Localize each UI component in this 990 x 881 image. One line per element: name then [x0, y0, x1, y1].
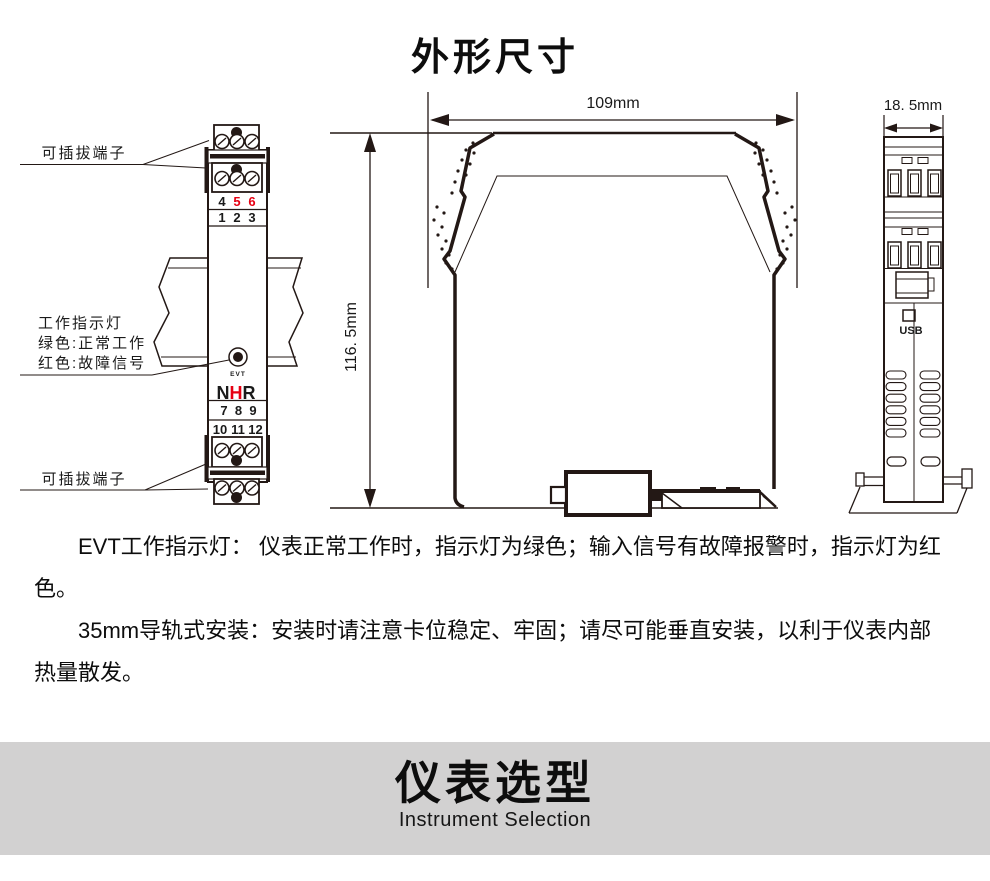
terminal-number: 9: [249, 403, 256, 418]
front-view-diagram: 4 5 6 1 2 3 EVT NHR 7 8 9: [20, 125, 303, 504]
width-dimension: 109mm: [428, 92, 797, 288]
din-clip: [551, 472, 776, 515]
pluggable-terminal-label-top: 可插拔端子: [41, 145, 126, 162]
width-dimension-label: 109mm: [586, 95, 639, 112]
housing-outline: [444, 133, 785, 507]
height-dimension-label: 116. 5mm: [343, 302, 360, 372]
terminal-latch-dot: [231, 492, 242, 503]
terminal-number: 12: [248, 422, 262, 437]
side-view-diagram: 109mm 116. 5mm: [330, 92, 797, 515]
indicator-led: [233, 352, 243, 362]
usb-label: USB: [899, 325, 922, 337]
pluggable-terminal-label-bottom: 可插拔端子: [41, 471, 126, 488]
note-evt-indicator: EVT工作指示灯： 仪表正常工作时，指示灯为绿色；输入信号有故障报警时，指示灯为…: [34, 526, 950, 610]
manual-page: 外形尺寸: [0, 0, 990, 881]
terminal-number: 3: [248, 210, 255, 225]
height-dimension: 116. 5mm: [330, 133, 778, 508]
indicator-label-line1: 工作指示灯: [38, 315, 123, 332]
top-terminal-assembly: [205, 125, 271, 193]
status-indicator: EVT: [229, 348, 247, 378]
banner-subtitle: Instrument Selection: [0, 809, 990, 832]
dot-texture: [432, 141, 796, 270]
indicator-label-line2: 绿色:正常工作: [38, 335, 146, 352]
dimension-drawing: 4 5 6 1 2 3 EVT NHR 7 8 9: [0, 0, 990, 530]
profile-view-diagram: 18. 5mm: [849, 97, 972, 513]
depth-dimension: 18. 5mm: [884, 97, 943, 136]
terminal-number: 10: [213, 422, 227, 437]
section-banner: 仪表选型 Instrument Selection: [0, 742, 990, 855]
notes-section: EVT工作指示灯： 仪表正常工作时，指示灯为绿色；输入信号有故障报警时，指示灯为…: [34, 526, 950, 694]
terminal-number: 11: [231, 422, 245, 437]
indicator-label-line3: 红色:故障信号: [38, 354, 146, 372]
banner-title: 仪表选型: [0, 742, 990, 809]
callout-pluggable-bottom: 可插拔端子: [20, 464, 208, 490]
terminal-latch-dot: [231, 455, 242, 466]
note-rail-mounting: 35mm导轨式安装：安装时请注意卡位稳定、牢固；请尽可能垂直安装，以利于仪表内部…: [34, 610, 950, 694]
callout-pluggable-top: 可插拔端子: [20, 141, 209, 169]
terminal-number: 8: [235, 403, 242, 418]
depth-dimension-label: 18. 5mm: [884, 97, 942, 114]
terminal-number: 4: [218, 194, 226, 209]
bottom-terminal-assembly: [205, 435, 271, 504]
indicator-name: EVT: [230, 371, 246, 378]
terminal-number: 7: [220, 403, 227, 418]
terminal-number: 6: [248, 194, 255, 209]
terminal-number: 2: [233, 210, 240, 225]
terminal-number: 5: [233, 194, 240, 209]
terminal-number: 1: [218, 210, 225, 225]
